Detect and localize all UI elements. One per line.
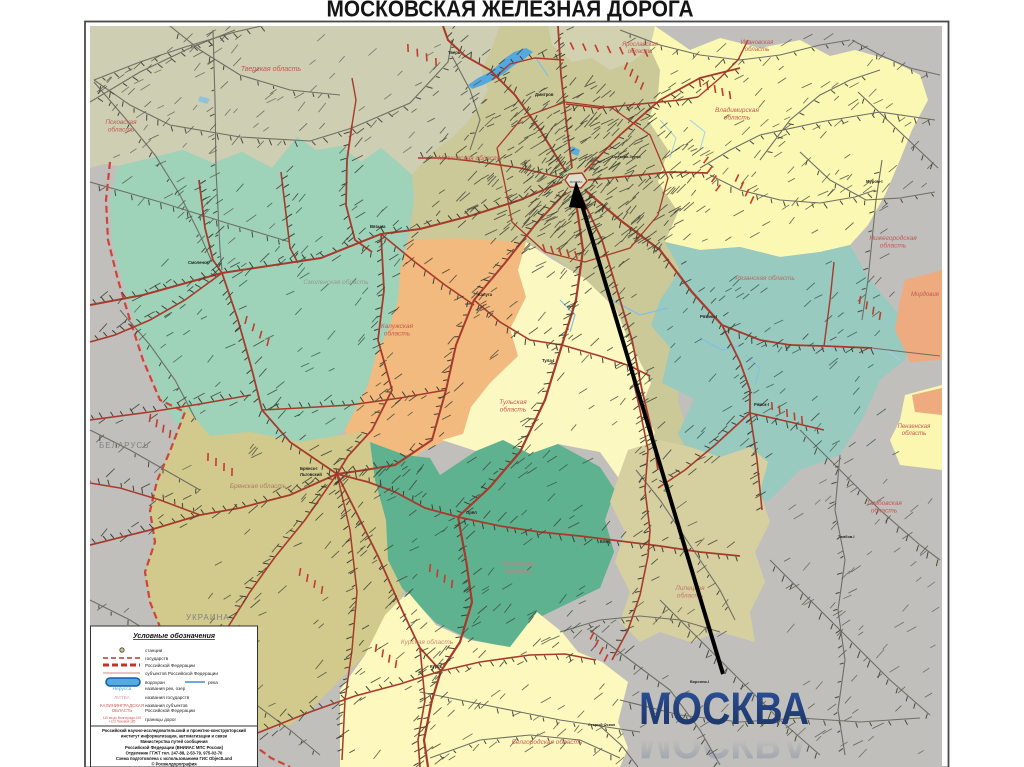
svg-text:Тульскаяобласть: Тульскаяобласть	[499, 399, 527, 414]
svg-text:Дмитров: Дмитров	[535, 92, 554, 97]
svg-text:Муром-I: Муром-I	[866, 179, 882, 184]
svg-text:Рязань-I: Рязань-I	[700, 314, 717, 319]
svg-text:Тверь: Тверь	[448, 50, 461, 55]
svg-text:Российской Федерации: Российской Федерации	[145, 662, 195, 668]
svg-text:названия государств: названия государств	[145, 695, 190, 700]
svg-text:Отделение ГГЖТ тел. 247-88, 2-: Отделение ГГЖТ тел. 247-88, 2-53-79, 975…	[126, 750, 223, 755]
svg-text:Тула-I: Тула-I	[542, 358, 554, 363]
svg-text:УКРАИНА: УКРАИНА	[186, 613, 230, 622]
svg-text:границы дорог: границы дорог	[145, 717, 176, 722]
svg-text:станции: станции	[145, 648, 163, 653]
svg-text:Старый Оскол: Старый Оскол	[588, 723, 616, 727]
svg-text:ОБЛАСТЬ: ОБЛАСТЬ	[112, 708, 133, 713]
svg-text:Схема подготовлена с использов: Схема подготовлена с использованием ГИС …	[116, 756, 233, 761]
svg-text:Курская область: Курская область	[401, 638, 454, 646]
svg-text:Вязьма: Вязьма	[370, 224, 386, 229]
svg-text:Брянск-I: Брянск-I	[300, 466, 317, 471]
svg-text:Российский научно-исследовател: Российский научно-исследовательский и пр…	[102, 728, 246, 733]
svg-text:Ряжск-I: Ряжск-I	[754, 402, 769, 407]
svg-text:Тамбов-I: Тамбов-I	[838, 535, 854, 539]
svg-text:Калужскаяобласть: Калужскаяобласть	[381, 323, 414, 338]
svg-text:ЛИТВА: ЛИТВА	[114, 695, 131, 701]
svg-text:МОСКВА: МОСКВА	[639, 717, 809, 767]
svg-text:Льговский: Льговский	[300, 472, 322, 477]
svg-text:Калуга: Калуга	[478, 292, 493, 297]
svg-text:государств: государств	[145, 656, 169, 661]
svg-text:Орловскаяобласть: Орловскаяобласть	[502, 561, 535, 576]
svg-text:Белгородская область: Белгородская область	[512, 738, 583, 746]
svg-text:названия рек, озер: названия рек, озер	[145, 686, 186, 691]
svg-text:Орёл: Орёл	[466, 510, 477, 515]
svg-text:МОСКОВСКАЯ ЖЕЛЕЗНАЯ ДОРОГА: МОСКОВСКАЯ ЖЕЛЕЗНАЯ ДОРОГА	[327, 0, 694, 22]
svg-text:Ивановскаяобласть: Ивановскаяобласть	[741, 40, 774, 53]
svg-text:Нерусса: Нерусса	[113, 686, 132, 692]
svg-text:© Росжелдорография: © Росжелдорография	[151, 762, 197, 767]
svg-text:+123 Лиховой-185: +123 Лиховой-185	[109, 720, 136, 724]
svg-text:институт информатизации, автом: институт информатизации, автоматизации и…	[121, 734, 228, 739]
svg-text:субъектов Российской Федерации: субъектов Российской Федерации	[145, 670, 218, 676]
svg-text:Орехово-Зуево: Орехово-Зуево	[612, 155, 641, 159]
svg-text:Рязанская область: Рязанская область	[735, 274, 795, 282]
svg-text:Российской Федерации (ВНИИАС М: Российской Федерации (ВНИИАС МПС России)	[125, 745, 224, 750]
svg-text:Министерства путей сообщения: Министерства путей сообщения	[140, 739, 208, 744]
svg-text:Пензенскаяобласть: Пензенскаяобласть	[898, 424, 932, 437]
svg-text:Смоленск: Смоленск	[188, 260, 209, 265]
svg-text:Условные обозначения: Условные обозначения	[133, 632, 215, 640]
svg-text:Смоленская область: Смоленская область	[303, 278, 369, 286]
svg-text:Московская область: Московская область	[438, 154, 502, 162]
svg-text:Елец: Елец	[600, 539, 611, 544]
svg-text:Курск: Курск	[430, 664, 443, 669]
svg-text:Российской Федерации: Российской Федерации	[145, 707, 195, 713]
svg-text:Тверская область: Тверская область	[241, 65, 302, 73]
svg-text:Брянская область: Брянская область	[230, 482, 287, 490]
svg-text:река: река	[208, 680, 218, 685]
svg-text:Тамбовскаяобласть: Тамбовскаяобласть	[866, 499, 902, 515]
svg-text:Мордовия: Мордовия	[911, 292, 940, 298]
svg-text:БЕЛАРУСЬ: БЕЛАРУСЬ	[99, 441, 149, 450]
svg-text:Псковскаяобласть: Псковскаяобласть	[105, 119, 137, 134]
svg-text:водохран: водохран	[145, 680, 165, 685]
